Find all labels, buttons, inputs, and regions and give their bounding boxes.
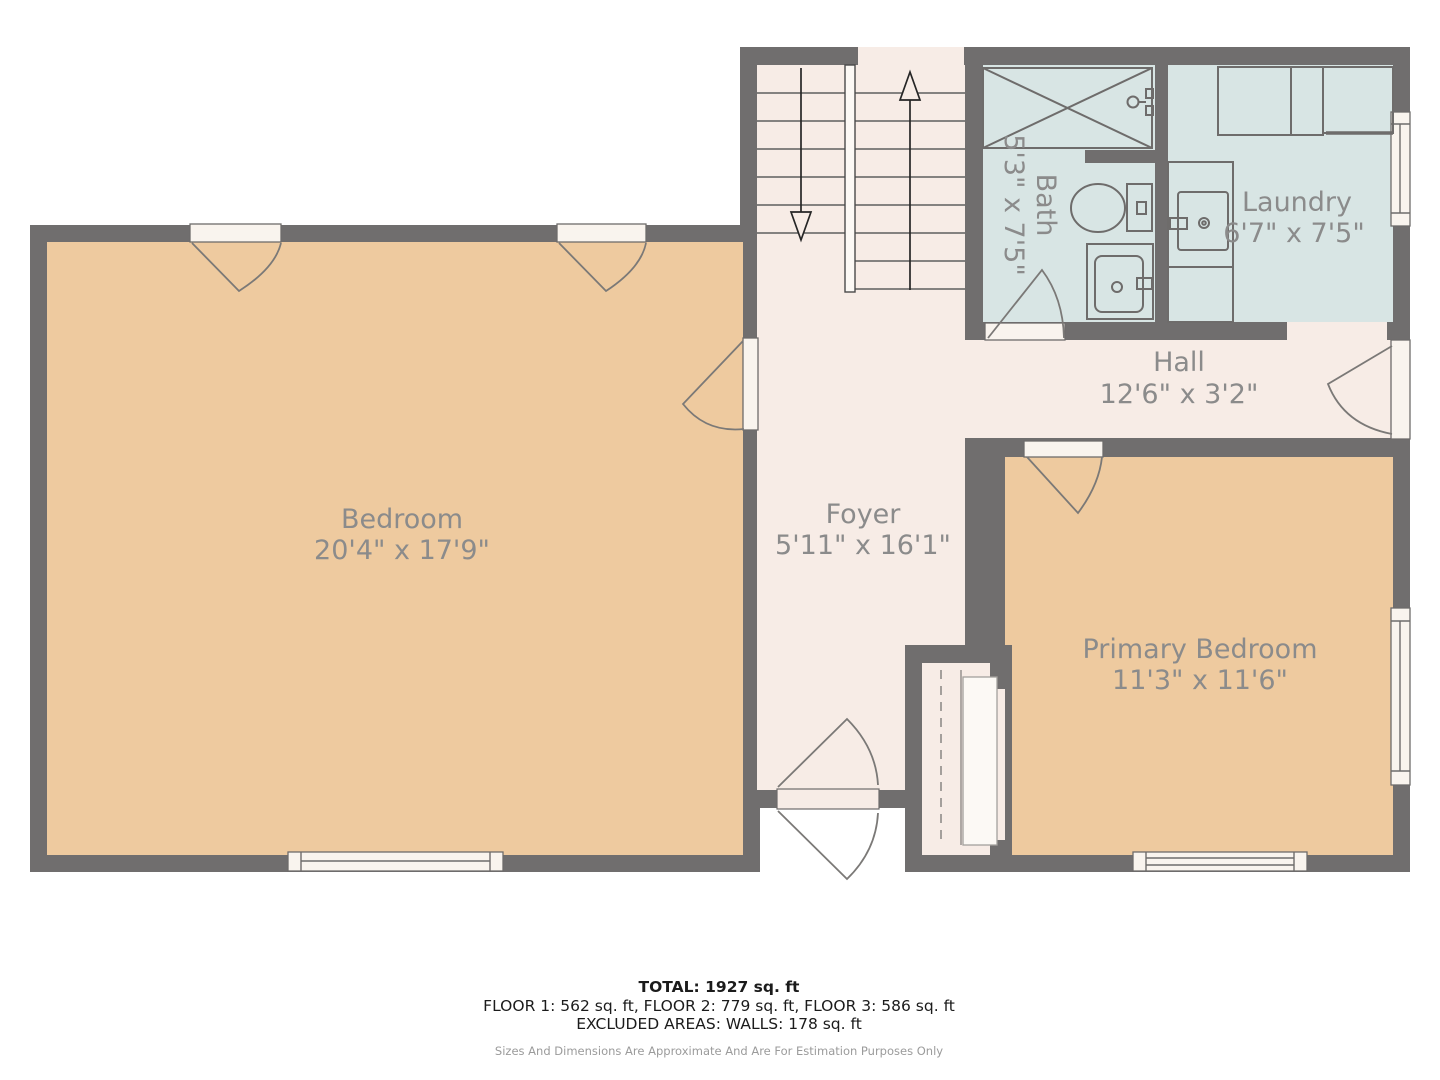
closet-door-panel — [963, 677, 997, 845]
stair-divider — [845, 65, 855, 292]
floor-areas-text: FLOOR 1: 562 sq. ft, FLOOR 2: 779 sq. ft… — [483, 997, 955, 1015]
primary-bedroom-dims: 11'3" x 11'6" — [1112, 665, 1288, 696]
primary-right-window — [1391, 608, 1410, 785]
foyer-label: Foyer — [826, 499, 902, 530]
bedroom-label: Bedroom — [341, 504, 463, 535]
disclaimer-text: Sizes And Dimensions Are Approximate And… — [495, 1044, 943, 1058]
laundry-dims: 6'7" x 7'5" — [1223, 218, 1365, 249]
sink-vanity-icon — [1087, 244, 1153, 319]
bedroom-dims: 20'4" x 17'9" — [314, 535, 490, 566]
primary-bedroom-label: Primary Bedroom — [1082, 634, 1317, 665]
toilet-icon — [1071, 184, 1152, 232]
floor-plan-page: Bedroom 20'4" x 17'9" Foyer 5'11" x 16'1… — [0, 0, 1440, 1080]
foyer-dims: 5'11" x 16'1" — [775, 530, 951, 561]
bath-partition-wall — [1085, 150, 1155, 163]
excluded-areas-text: EXCLUDED AREAS: WALLS: 178 sq. ft — [576, 1015, 862, 1033]
closet — [905, 645, 1012, 872]
stair-top-landing — [858, 47, 964, 65]
total-area-text: TOTAL: 1927 sq. ft — [639, 978, 800, 996]
hall-label: Hall — [1153, 347, 1205, 378]
primary-bottom-window — [1133, 852, 1307, 871]
hall-dims: 12'6" x 3'2" — [1100, 379, 1259, 410]
bath-dims: 5'3" x 7'5" — [998, 134, 1029, 276]
floor-plan-svg: Bedroom 20'4" x 17'9" Foyer 5'11" x 16'1… — [0, 0, 1440, 1080]
bath-label: Bath — [1030, 174, 1061, 237]
bedroom-window — [288, 852, 503, 871]
laundry-opening — [1287, 322, 1387, 340]
laundry-label: Laundry — [1242, 187, 1352, 218]
